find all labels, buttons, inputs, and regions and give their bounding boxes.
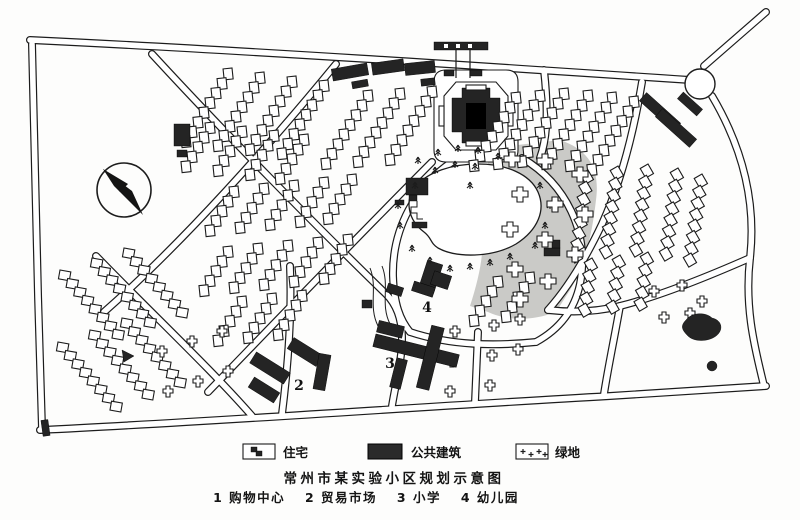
caption-item-trade-market: 2 贸易市场 <box>305 490 377 505</box>
map-title: 常州市某实验小区规划示意图 <box>284 470 505 487</box>
legend: 住宅 公共建筑 绿地 <box>243 444 581 460</box>
map-caption: 1 购物中心 2 贸易市场 3 小学 4 幼儿园 <box>213 490 519 505</box>
roundabout-slabs <box>639 92 702 148</box>
legend-public-building-label: 公共建筑 <box>411 445 462 460</box>
caption-item-kindergarten: 4 幼儿园 <box>461 490 519 505</box>
small-wedge <box>122 350 134 362</box>
legend-green-space-label: 绿地 <box>555 445 581 460</box>
caption-item-shopping-center: 1 购物中心 <box>213 490 285 505</box>
legend-residential-label: 住宅 <box>283 445 309 460</box>
caption-item-primary-school: 3 小学 <box>397 490 441 505</box>
legend-residential-swatch <box>243 444 275 459</box>
legend-green-space-swatch <box>516 444 548 459</box>
legend-public-building-swatch <box>368 444 402 459</box>
marker-trade-market: 2 <box>294 378 304 394</box>
public-buildings <box>41 59 721 437</box>
site-plan-map: 2 3 4 住宅 公共建筑 绿地 常州市某实验小区规划示意图 1 购物中心 2 … <box>0 0 800 520</box>
roundabout <box>685 69 715 99</box>
marker-primary-school: 3 <box>385 356 395 372</box>
small-round-feature <box>707 361 717 371</box>
planning-map-page: 2 3 4 住宅 公共建筑 绿地 常州市某实验小区规划示意图 1 购物中心 2 … <box>0 0 800 520</box>
tree-cluster-blob <box>682 314 721 341</box>
compass-north-arrow <box>97 163 151 217</box>
top-public-slabs <box>331 59 435 89</box>
marker-kindergarten: 4 <box>422 300 432 316</box>
